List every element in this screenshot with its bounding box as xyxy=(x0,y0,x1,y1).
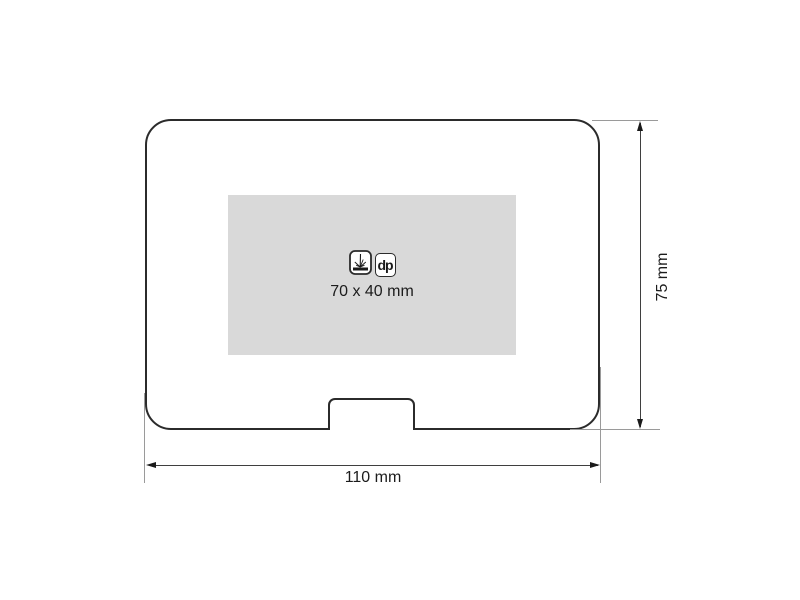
laser-engraving-icon xyxy=(349,250,372,280)
digital-print-icon-label: dp xyxy=(377,257,392,273)
width-dimension-line xyxy=(149,465,598,466)
extension-line-left xyxy=(144,393,145,483)
print-area-size-label: 70 x 40 mm xyxy=(330,283,414,301)
height-dimension-line xyxy=(640,123,641,427)
branding-method-icons: dp xyxy=(349,250,396,280)
extension-line-right xyxy=(600,367,601,483)
extension-line-top xyxy=(592,120,658,121)
extension-line-bottom-right xyxy=(570,429,660,430)
clip-notch xyxy=(328,398,415,430)
digital-print-icon: dp xyxy=(375,253,396,277)
print-area: dp 70 x 40 mm xyxy=(228,195,516,355)
arrow-down-icon xyxy=(637,419,643,429)
arrow-up-icon xyxy=(637,121,643,131)
width-dimension-label: 110 mm xyxy=(273,469,473,487)
height-dimension-label: 75 mm xyxy=(654,237,674,317)
arrow-left-icon xyxy=(146,462,156,468)
diagram-canvas: dp 70 x 40 mm 110 mm 75 mm xyxy=(0,0,800,600)
arrow-right-icon xyxy=(590,462,600,468)
